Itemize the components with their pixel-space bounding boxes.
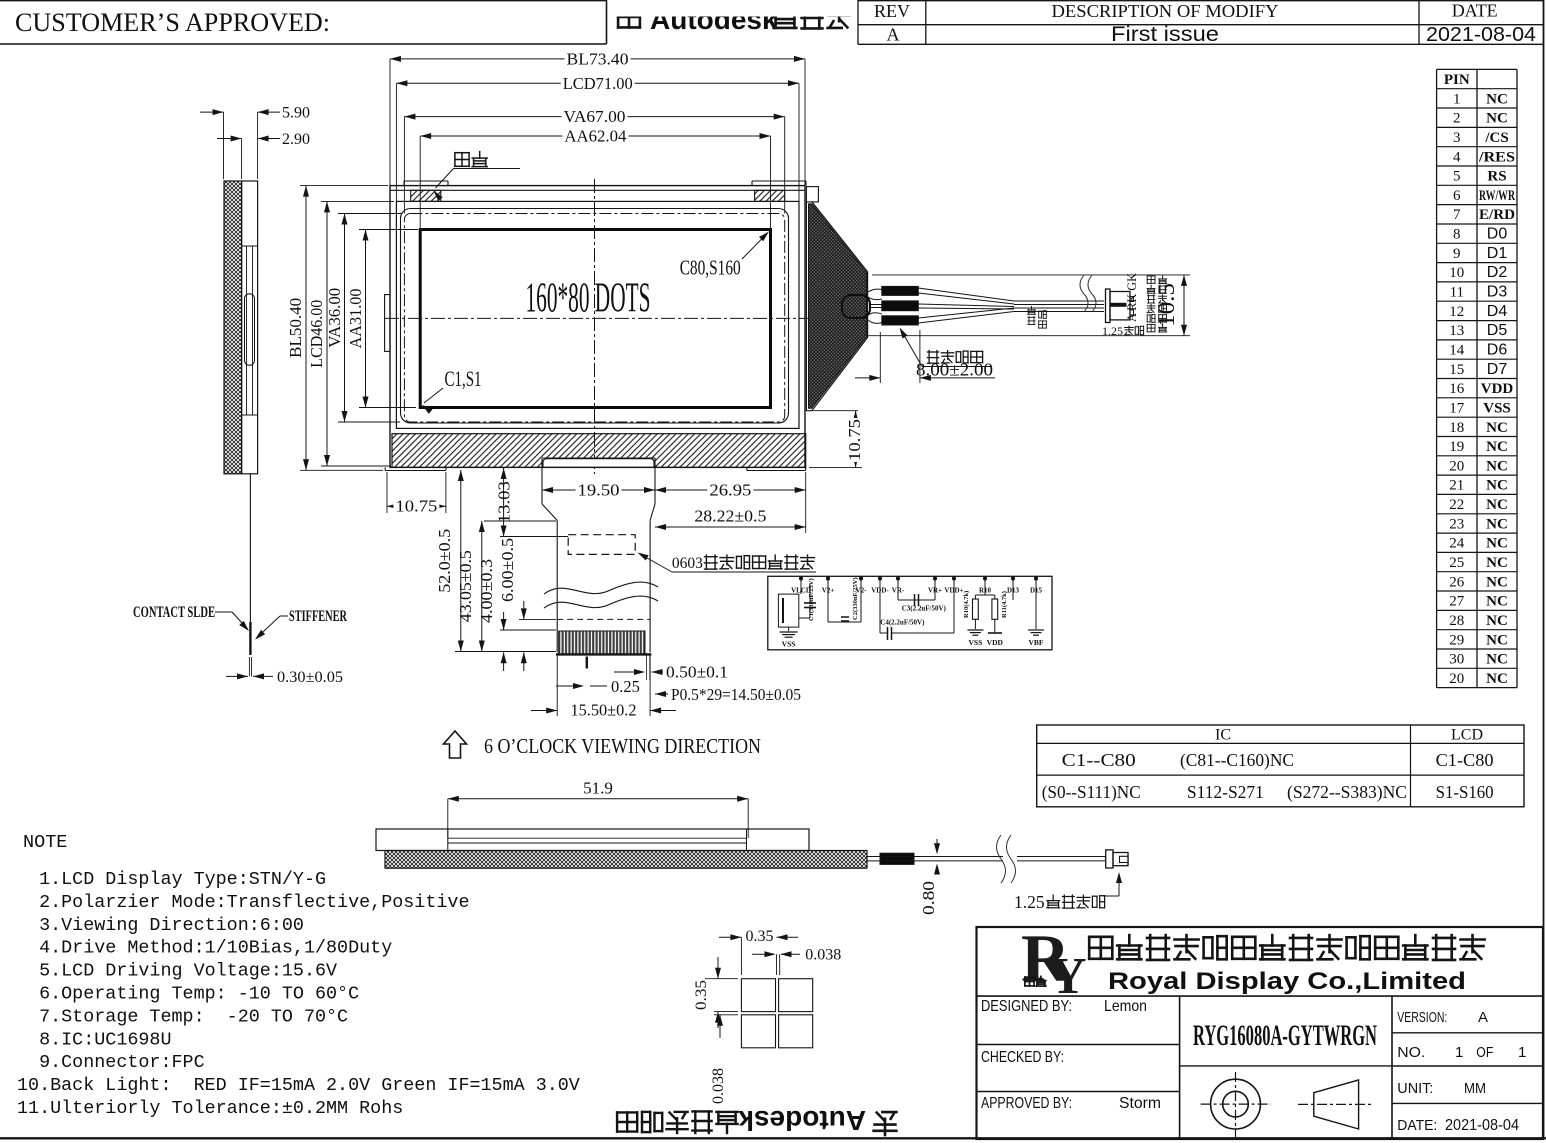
svg-text:NC: NC	[1486, 536, 1508, 552]
svg-text:2021-08-04: 2021-08-04	[1426, 24, 1536, 46]
svg-text:VERSION:: VERSION:	[1397, 1009, 1447, 1026]
svg-text:S112-S271: S112-S271	[1187, 782, 1264, 802]
svg-text:D5: D5	[1487, 322, 1508, 339]
svg-text:NC: NC	[1486, 91, 1508, 107]
svg-text:17: 17	[1449, 400, 1465, 416]
svg-text:0.80: 0.80	[919, 881, 938, 915]
svg-text:15: 15	[1449, 362, 1464, 378]
svg-text:NC: NC	[1486, 439, 1508, 455]
svg-text:REV: REV	[874, 1, 910, 21]
svg-text:28.22±0.5: 28.22±0.5	[694, 507, 766, 526]
svg-text:10.75: 10.75	[845, 419, 864, 461]
svg-text:3.Viewing Direction:6:00: 3.Viewing Direction:6:00	[17, 915, 304, 936]
svg-text:(C81--C160)NC: (C81--C160)NC	[1180, 750, 1294, 771]
svg-text:8.00±2.00: 8.00±2.00	[916, 360, 993, 380]
svg-text:19.50: 19.50	[578, 481, 620, 500]
svg-text:2: 2	[1453, 111, 1461, 127]
svg-text:20: 20	[1449, 671, 1464, 687]
svg-text:IC: IC	[1215, 727, 1231, 744]
svg-text:Royal Display Co.,Limited: Royal Display Co.,Limited	[1108, 968, 1466, 995]
svg-text:27: 27	[1449, 594, 1465, 610]
svg-text:2021-08-04: 2021-08-04	[1445, 1117, 1519, 1134]
svg-text:C2(330nF/25V): C2(330nF/25V)	[852, 577, 859, 620]
svg-text:15.50±0.2: 15.50±0.2	[571, 701, 637, 720]
svg-text:AA31.00: AA31.00	[346, 289, 365, 349]
svg-text:9.Connector:FPC: 9.Connector:FPC	[17, 1052, 205, 1073]
svg-text:DATE:: DATE:	[1397, 1117, 1437, 1134]
svg-text:5.LCD Driving Voltage:15.6V: 5.LCD Driving Voltage:15.6V	[17, 961, 337, 982]
svg-text:23: 23	[1449, 516, 1464, 532]
svg-text:1: 1	[1518, 1044, 1526, 1061]
svg-text:6.Operating Temp: -10 TO 60°C: 6.Operating Temp: -10 TO 60°C	[17, 984, 359, 1005]
svg-text:7: 7	[1453, 207, 1461, 223]
svg-text:0.35: 0.35	[746, 928, 774, 945]
svg-text:26: 26	[1449, 574, 1465, 590]
svg-text:NC: NC	[1486, 574, 1508, 590]
svg-text:Autodesk: Autodesk	[738, 1105, 866, 1136]
svg-text:CHECKED BY:: CHECKED BY:	[981, 1049, 1064, 1066]
svg-text:NC: NC	[1486, 632, 1508, 648]
svg-text:C1(330nF/25V): C1(330nF/25V)	[808, 578, 815, 621]
svg-text:/RES: /RES	[1478, 149, 1515, 165]
svg-text:13.03: 13.03	[495, 481, 514, 523]
svg-text:BL50.40: BL50.40	[286, 298, 305, 358]
svg-text:NC: NC	[1486, 497, 1508, 513]
svg-text:S1-S160: S1-S160	[1436, 782, 1494, 802]
svg-text:NC: NC	[1486, 652, 1508, 668]
svg-text:D1: D1	[1487, 245, 1508, 262]
svg-text:BL73.40: BL73.40	[567, 49, 629, 68]
svg-text:(S272--S383)NC: (S272--S383)NC	[1287, 782, 1407, 803]
svg-text:DESIGNED BY:: DESIGNED BY:	[981, 998, 1072, 1015]
svg-text:C1-C80: C1-C80	[1436, 750, 1494, 770]
svg-text:10.75: 10.75	[395, 497, 437, 516]
svg-text:CUSTOMER’S APPROVED:: CUSTOMER’S APPROVED:	[15, 8, 330, 37]
svg-text:LCD: LCD	[1451, 727, 1483, 744]
svg-text:A RK GK: A RK GK	[1125, 273, 1139, 322]
svg-text:VDD: VDD	[1481, 381, 1514, 397]
svg-text:First issue: First issue	[1111, 23, 1219, 46]
svg-text:A: A	[1478, 1009, 1488, 1026]
svg-text:5: 5	[1453, 169, 1461, 185]
svg-text:1.LCD Display Type:STN/Y-G: 1.LCD Display Type:STN/Y-G	[17, 869, 326, 890]
svg-text:NOTE: NOTE	[23, 832, 67, 853]
svg-text:6: 6	[1453, 188, 1461, 204]
svg-text:APPROVED BY:: APPROVED BY:	[981, 1095, 1072, 1112]
svg-text:A: A	[887, 25, 900, 45]
svg-text:10: 10	[1449, 265, 1464, 281]
svg-text:D0: D0	[1487, 226, 1508, 243]
svg-text:PIN: PIN	[1444, 72, 1470, 88]
svg-text:P0.5*29=14.50±0.05: P0.5*29=14.50±0.05	[671, 685, 801, 704]
svg-text:25: 25	[1449, 555, 1464, 571]
svg-text:26.95: 26.95	[709, 481, 751, 500]
svg-text:19: 19	[1449, 439, 1464, 455]
svg-text:VSS: VSS	[1483, 400, 1511, 416]
svg-text:VDD: VDD	[987, 638, 1004, 647]
svg-text:DATE: DATE	[1452, 1, 1498, 21]
svg-text:C3(2.2uF/50V): C3(2.2uF/50V)	[902, 605, 947, 613]
svg-text:VA67.00: VA67.00	[564, 107, 626, 126]
svg-text:52.0±0.5: 52.0±0.5	[435, 529, 454, 593]
svg-text:29: 29	[1449, 632, 1464, 648]
svg-text:STIFFENER: STIFFENER	[289, 608, 348, 625]
svg-text:10.Back Light: RED IF=15mA 2.: 10.Back Light: RED IF=15mA 2.0V Green IF…	[17, 1075, 580, 1096]
svg-text:2.90: 2.90	[282, 131, 310, 148]
svg-text:6.00±0.5: 6.00±0.5	[498, 538, 517, 602]
svg-text:Lemon: Lemon	[1104, 998, 1147, 1015]
svg-text:(S0--S111)NC: (S0--S111)NC	[1042, 782, 1141, 803]
svg-text:0.038: 0.038	[805, 947, 841, 964]
svg-text:LCD71.00: LCD71.00	[563, 74, 633, 93]
svg-text:12: 12	[1449, 304, 1464, 320]
svg-text:8: 8	[1453, 227, 1461, 243]
svg-text:NC: NC	[1486, 671, 1508, 687]
svg-text:Storm: Storm	[1119, 1095, 1161, 1112]
svg-text:DESCRIPTION OF MODIFY: DESCRIPTION OF MODIFY	[1052, 1, 1279, 21]
svg-text:0.35: 0.35	[693, 980, 710, 1010]
svg-text:NC: NC	[1486, 594, 1508, 610]
svg-text:R11(4.7k): R11(4.7k)	[1001, 591, 1008, 618]
svg-text:Y: Y	[1049, 948, 1087, 1005]
svg-text:4.00±0.3: 4.00±0.3	[477, 559, 496, 623]
svg-text:R10(4.7k): R10(4.7k)	[963, 591, 970, 618]
svg-text:MM: MM	[1464, 1080, 1486, 1097]
svg-text:14: 14	[1449, 343, 1465, 359]
svg-text:NO.: NO.	[1397, 1044, 1425, 1061]
svg-text:VSS: VSS	[969, 638, 983, 647]
svg-text:NC: NC	[1486, 458, 1508, 474]
svg-text:VA36.00: VA36.00	[325, 288, 344, 348]
svg-text:RW/WR: RW/WR	[1479, 188, 1515, 204]
svg-text:0.038: 0.038	[710, 1068, 727, 1104]
svg-text:30: 30	[1449, 652, 1464, 668]
svg-text:C1,S1: C1,S1	[445, 366, 482, 391]
svg-text:C1--C80: C1--C80	[1062, 750, 1136, 770]
svg-text:CONTACT SLDE: CONTACT SLDE	[133, 604, 215, 621]
svg-text:/CS: /CS	[1484, 130, 1508, 146]
svg-text:1: 1	[1453, 91, 1461, 107]
svg-text:6 O’CLOCK VIEWING DIRECTION: 6 O’CLOCK VIEWING DIRECTION	[484, 734, 761, 758]
svg-text:D6: D6	[1487, 342, 1508, 359]
svg-text:51.9: 51.9	[583, 779, 613, 798]
svg-text:LCD46.00: LCD46.00	[307, 300, 326, 368]
svg-text:43.05±0.5: 43.05±0.5	[456, 550, 475, 622]
svg-text:3: 3	[1453, 130, 1461, 146]
svg-text:D7: D7	[1487, 361, 1508, 378]
svg-text:4.Drive Method:1/10Bias,1/80Du: 4.Drive Method:1/10Bias,1/80Duty	[17, 938, 392, 959]
svg-text:D3: D3	[1487, 284, 1508, 301]
svg-text:18: 18	[1449, 420, 1464, 436]
svg-text:2.Polarzier Mode:Transflective: 2.Polarzier Mode:Transflective,Positive	[17, 892, 469, 913]
svg-text:0603: 0603	[672, 555, 703, 572]
svg-text:RYG16080A-GYTWRGN: RYG16080A-GYTWRGN	[1193, 1019, 1377, 1052]
svg-text:AA62.04: AA62.04	[564, 127, 626, 146]
svg-text:22: 22	[1449, 497, 1464, 513]
svg-text:E/RD: E/RD	[1479, 207, 1515, 223]
svg-text:160*80 DOTS: 160*80 DOTS	[526, 276, 651, 322]
svg-text:NC: NC	[1486, 613, 1508, 629]
svg-text:0.50±0.1: 0.50±0.1	[666, 663, 728, 682]
svg-text:20: 20	[1449, 458, 1464, 474]
svg-text:NC: NC	[1486, 111, 1508, 127]
svg-text:0.30±0.05: 0.30±0.05	[277, 669, 343, 686]
svg-text:NC: NC	[1486, 478, 1508, 494]
svg-text:7.Storage Temp: -20 TO 70°C: 7.Storage Temp: -20 TO 70°C	[17, 1006, 348, 1027]
svg-text:16: 16	[1449, 381, 1465, 397]
svg-text:RS: RS	[1487, 169, 1506, 185]
svg-text:NC: NC	[1486, 516, 1508, 532]
svg-text:0.25: 0.25	[611, 677, 640, 696]
svg-text:21: 21	[1449, 478, 1464, 494]
svg-text:11.Ulteriorly Tolerance:±0.2MM: 11.Ulteriorly Tolerance:±0.2MM Rohs	[17, 1098, 403, 1119]
svg-text:C80,S160: C80,S160	[680, 256, 741, 280]
svg-text:UNIT:: UNIT:	[1397, 1080, 1433, 1097]
svg-text:24: 24	[1449, 536, 1465, 552]
svg-text:4: 4	[1453, 149, 1461, 165]
svg-text:11: 11	[1450, 285, 1464, 301]
svg-text:1: 1	[1455, 1044, 1463, 1061]
svg-text:9: 9	[1453, 246, 1461, 262]
svg-text:OF: OF	[1476, 1044, 1493, 1061]
svg-text:C4(2.2uF/50V): C4(2.2uF/50V)	[880, 619, 925, 627]
svg-text:NC: NC	[1486, 555, 1508, 571]
svg-text:D4: D4	[1487, 303, 1508, 320]
svg-text:5.90: 5.90	[282, 105, 310, 122]
svg-text:28: 28	[1449, 613, 1464, 629]
svg-text:NC: NC	[1486, 420, 1508, 436]
svg-text:1.25: 1.25	[1014, 892, 1045, 912]
svg-text:D2: D2	[1487, 264, 1508, 281]
svg-text:Autodesk: Autodesk	[650, 4, 778, 35]
svg-text:13: 13	[1449, 323, 1464, 339]
svg-text:VBF: VBF	[1029, 638, 1044, 647]
svg-text:VSS: VSS	[782, 640, 796, 649]
svg-text:8.IC:UC1698U: 8.IC:UC1698U	[17, 1029, 172, 1050]
